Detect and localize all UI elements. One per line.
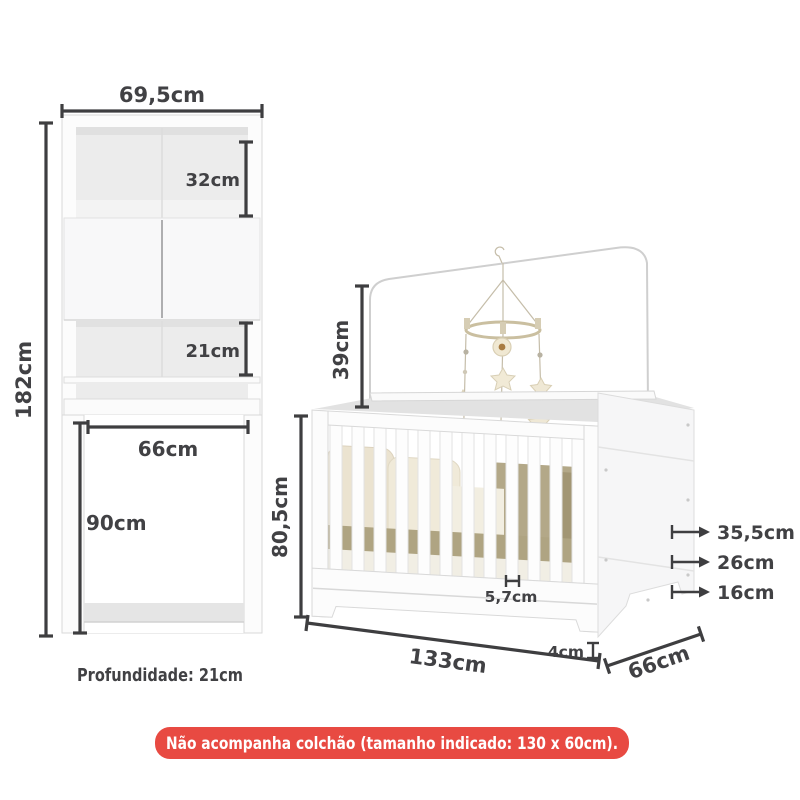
crib-side-panel xyxy=(598,393,694,637)
cabinet-lower-shelf-label: 21cm xyxy=(186,341,240,362)
mobile-hook xyxy=(495,247,504,263)
crib-canopy-dimension: 39cm xyxy=(329,286,369,407)
crib-illustration xyxy=(312,247,694,637)
crib-slat xyxy=(528,435,540,581)
crib-depth-dimension: 66cm xyxy=(604,626,703,684)
crib-width-label: 133cm xyxy=(408,644,489,678)
arrow-right-icon xyxy=(699,587,710,598)
crib-slat xyxy=(374,427,386,573)
arrow-right-icon xyxy=(699,557,710,568)
crib-slat-gap-label: 5,7cm xyxy=(485,588,538,606)
crib-base-height-label: 4cm xyxy=(548,643,584,661)
cabinet-shelf-edge xyxy=(64,377,260,383)
crib-slat xyxy=(550,436,562,582)
cabinet-width-label: 69,5cm xyxy=(119,83,205,107)
mattress-level-label: 35,5cm xyxy=(717,522,795,544)
crib-bedding xyxy=(326,445,584,583)
crib-slat xyxy=(572,438,584,584)
crib-front-face xyxy=(312,410,598,632)
cabinet-top-shelf-label: 32cm xyxy=(186,170,240,191)
crib-base-height-dimension: 4cm xyxy=(548,643,599,661)
crib-slat xyxy=(484,433,496,579)
crib-height-label: 80,5cm xyxy=(268,476,292,558)
cabinet-doors xyxy=(64,218,260,320)
mattress-level-label: 26cm xyxy=(717,552,775,574)
crib-slat xyxy=(506,434,518,580)
product-dimensions-image: 69,5cm 182cm 32cm 21cm 66cm xyxy=(0,0,800,800)
arrow-right-icon xyxy=(699,527,710,538)
cabinet-depth-note: Profundidade: 21cm xyxy=(77,665,243,686)
mattress-level-label: 16cm xyxy=(717,582,775,604)
cabinet-illustration xyxy=(62,115,262,633)
crib-height-dimension: 80,5cm xyxy=(268,416,308,617)
cabinet-height-label: 182cm xyxy=(12,341,36,419)
crib-slat xyxy=(462,432,474,578)
cabinet-leg-right xyxy=(244,415,262,633)
cabinet-lower-shelf xyxy=(64,320,260,415)
cabinet-bottom-board xyxy=(64,399,260,415)
banner-text: Não acompanha colchão (tamanho indicado:… xyxy=(166,734,618,754)
cabinet-base-panel xyxy=(84,603,244,622)
cabinet-width-dimension: 69,5cm xyxy=(62,83,262,118)
cabinet-opening-height-label: 90cm xyxy=(86,511,147,535)
crib-slat xyxy=(440,430,452,576)
crib-canopy-label: 39cm xyxy=(329,320,353,381)
crib-slat xyxy=(396,428,408,574)
mattress-notice-banner: Não acompanha colchão (tamanho indicado:… xyxy=(155,727,629,759)
cabinet-height-dimension: 182cm xyxy=(12,123,53,636)
crib-slat xyxy=(418,429,430,575)
cabinet-opening-width-label: 66cm xyxy=(138,437,199,461)
crib-slat xyxy=(330,424,342,570)
crib-slat xyxy=(352,425,364,571)
dimensions-diagram: 69,5cm 182cm 32cm 21cm 66cm xyxy=(0,0,800,800)
